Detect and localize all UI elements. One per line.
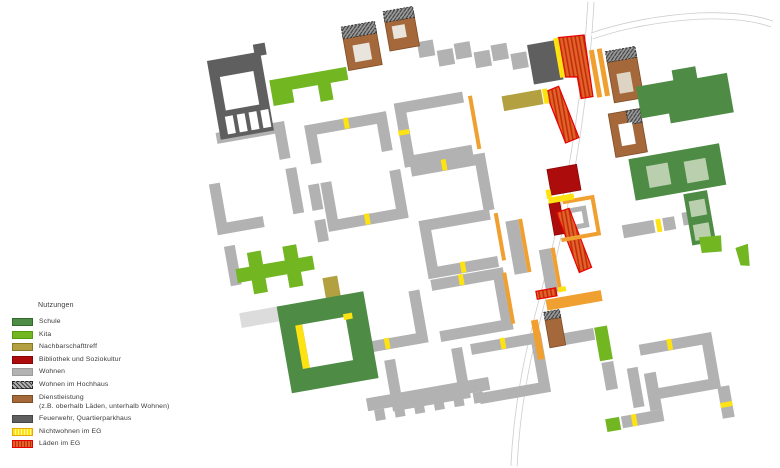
legend-swatch-bibliothek	[12, 356, 33, 364]
legend-item-laeden-eg: Läden im EG	[12, 440, 222, 448]
legend-sublabel: (z.B. oberhalb Läden, unterhalb Wohnen)	[39, 402, 169, 411]
district-buildings	[190, 0, 780, 468]
legend-item-bibliothek: Bibliothek und Soziokultur	[12, 356, 222, 364]
legend-swatch-nichtwohnen-eg	[12, 428, 33, 436]
legend-item-kita: Kita	[12, 331, 222, 339]
legend-swatch-feuerwehr	[12, 415, 33, 423]
legend-item-wohnen: Wohnen	[12, 368, 222, 376]
legend-swatch-kita	[12, 331, 33, 339]
legend-item-dienstleistung: Dienstleistung (z.B. oberhalb Läden, unt…	[12, 394, 222, 411]
legend-swatch-schule	[12, 318, 33, 326]
legend-swatch-nachbarschafttreff	[12, 343, 33, 351]
legend-label: Läden im EG	[39, 440, 80, 448]
legend-swatch-hochhaus	[12, 381, 33, 389]
legend-label: Kita	[39, 331, 51, 339]
site-plan-page: Nutzungen Schule Kita Nachbarschafttreff…	[0, 0, 780, 468]
legend-item-nachbarschafttreff: Nachbarschafttreff	[12, 343, 222, 351]
legend-label: Nachbarschafttreff	[39, 343, 97, 351]
legend-swatch-dienstleistung	[12, 395, 33, 403]
legend-label: Nichtwohnen im EG	[39, 428, 102, 436]
legend-item-nichtwohnen-eg: Nichtwohnen im EG	[12, 428, 222, 436]
legend-title: Nutzungen	[38, 302, 222, 309]
legend-item-feuerwehr: Feuerwehr, Quartierparkhaus	[12, 415, 222, 423]
legend-label: Feuerwehr, Quartierparkhaus	[39, 415, 131, 423]
legend-label: Wohnen	[39, 368, 65, 376]
building-quartierparkhaus	[206, 43, 280, 140]
legend-swatch-laeden-eg	[12, 440, 33, 448]
legend-item-schule: Schule	[12, 318, 222, 326]
buildings-wohnen	[196, 0, 734, 468]
legend: Nutzungen Schule Kita Nachbarschafttreff…	[12, 302, 222, 453]
legend-label: Schule	[39, 318, 61, 326]
legend-swatch-wohnen	[12, 368, 33, 376]
legend-label: Wohnen im Hochhaus	[39, 381, 108, 389]
legend-item-hochhaus: Wohnen im Hochhaus	[12, 381, 222, 389]
legend-label: Bibliothek und Soziokultur	[39, 356, 121, 364]
legend-label: Dienstleistung	[39, 394, 169, 402]
